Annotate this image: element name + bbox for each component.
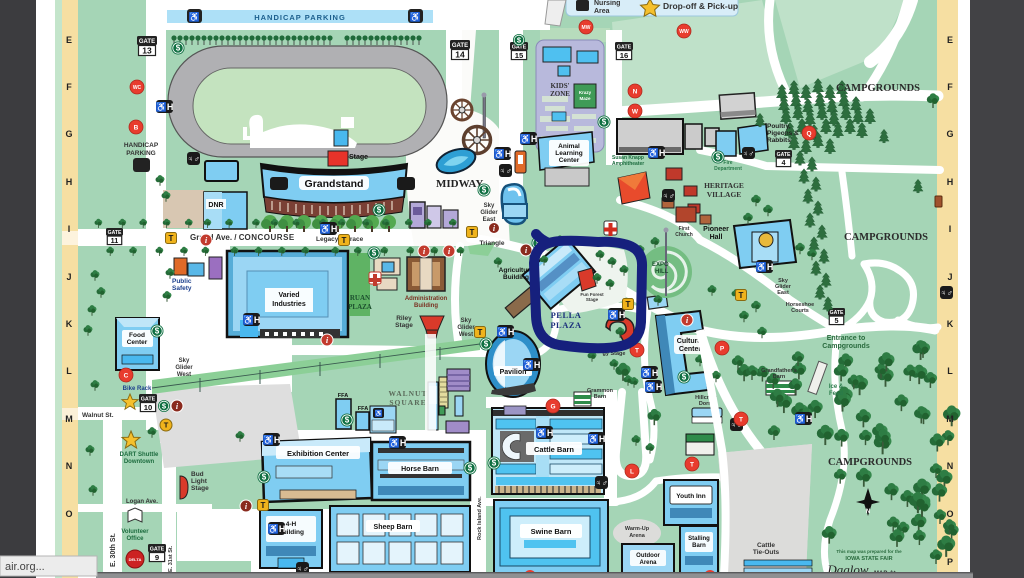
svg-text:♿H: ♿H — [641, 367, 659, 378]
svg-text:Grandstand: Grandstand — [305, 178, 364, 190]
svg-text:WALNUT: WALNUT — [389, 389, 428, 398]
svg-text:Q: Q — [806, 130, 811, 137]
svg-text:DART Shuttle: DART Shuttle — [120, 452, 159, 458]
svg-text:T: T — [164, 421, 169, 430]
svg-text:$: $ — [372, 249, 377, 258]
svg-text:Stage: Stage — [191, 485, 209, 492]
svg-text:KIDS': KIDS' — [550, 82, 569, 90]
svg-text:PLAZA: PLAZA — [348, 303, 372, 311]
svg-text:$: $ — [345, 416, 350, 425]
svg-text:Drop-off & Pick-up: Drop-off & Pick-up — [663, 1, 738, 11]
svg-text:Center: Center — [679, 346, 701, 353]
svg-text:N: N — [947, 461, 954, 471]
svg-text:Pigeons &: Pigeons & — [767, 130, 799, 137]
svg-text:T: T — [690, 461, 694, 468]
svg-text:T: T — [626, 300, 631, 309]
svg-text:Sheep Barn: Sheep Barn — [374, 524, 413, 531]
svg-text:East: East — [777, 290, 789, 296]
svg-text:Campgrounds: Campgrounds — [822, 343, 870, 350]
svg-text:$: $ — [482, 186, 487, 195]
svg-text:RUAN: RUAN — [350, 294, 370, 302]
svg-text:$: $ — [682, 373, 687, 382]
svg-text:GATE: GATE — [139, 39, 155, 45]
svg-text:T: T — [478, 328, 483, 337]
svg-text:WC: WC — [133, 85, 142, 91]
svg-text:E. 30th St.: E. 30th St. — [110, 533, 117, 567]
svg-text:Swine Barn: Swine Barn — [531, 527, 572, 536]
svg-text:T: T — [635, 347, 639, 354]
svg-text:W: W — [632, 108, 639, 115]
svg-text:This map was prepared for the: This map was prepared for the — [836, 549, 902, 554]
svg-text:Entrance to: Entrance to — [827, 335, 866, 342]
svg-text:♿H: ♿H — [523, 359, 541, 370]
svg-text:G: G — [65, 129, 72, 139]
svg-text:Learning: Learning — [555, 150, 582, 157]
svg-text:Courts: Courts — [791, 308, 809, 314]
svg-text:FFA: FFA — [338, 393, 348, 399]
svg-text:Bud: Bud — [191, 471, 204, 478]
svg-text:♿H: ♿H — [494, 148, 512, 159]
svg-text:♿H: ♿H — [497, 326, 515, 337]
svg-text:Pioneer: Pioneer — [703, 226, 729, 233]
svg-text:E. 31st St.: E. 31st St. — [168, 545, 174, 572]
svg-text:HILL: HILL — [655, 269, 669, 275]
svg-text:T: T — [169, 234, 174, 243]
svg-text:Stage: Stage — [349, 154, 368, 161]
svg-text:Logan Ave.: Logan Ave. — [126, 499, 158, 505]
svg-text:Feed: Feed — [829, 391, 843, 397]
svg-text:Triangle: Triangle — [480, 240, 505, 247]
svg-text:GATE: GATE — [150, 546, 165, 552]
svg-text:14: 14 — [455, 50, 465, 60]
svg-text:Building: Building — [414, 303, 438, 309]
svg-text:10: 10 — [144, 403, 153, 412]
svg-text:Tie-Outs: Tie-Outs — [753, 549, 780, 556]
svg-text:$: $ — [468, 464, 473, 473]
svg-text:Varied: Varied — [278, 292, 299, 299]
svg-text:T: T — [342, 236, 347, 245]
svg-text:Center: Center — [559, 157, 580, 164]
svg-text:♿: ♿ — [189, 11, 200, 22]
svg-text:$: $ — [602, 118, 607, 127]
svg-text:♿H: ♿H — [520, 133, 538, 144]
svg-text:♿H: ♿H — [156, 101, 174, 112]
svg-text:Stage: Stage — [586, 297, 599, 302]
svg-text:Sky: Sky — [179, 358, 190, 364]
svg-text:Office: Office — [126, 536, 144, 542]
svg-text:I: I — [68, 224, 71, 234]
svg-text:HERITAGE: HERITAGE — [704, 181, 744, 190]
svg-text:♿H: ♿H — [536, 427, 554, 438]
svg-text:Volunteer: Volunteer — [121, 529, 149, 535]
svg-text:♿H: ♿H — [608, 309, 626, 320]
svg-text:♿H: ♿H — [320, 223, 338, 234]
svg-text:K: K — [66, 319, 73, 329]
svg-text:Stalling: Stalling — [688, 536, 710, 542]
svg-text:♃♂: ♃♂ — [499, 166, 512, 176]
svg-text:Barn: Barn — [692, 543, 706, 549]
svg-text:Exhibition Center: Exhibition Center — [287, 449, 349, 458]
svg-text:H: H — [947, 177, 954, 187]
svg-text:MW: MW — [582, 25, 591, 31]
svg-text:CAMPGROUNDS: CAMPGROUNDS — [828, 457, 912, 468]
svg-text:I: I — [949, 224, 952, 234]
svg-text:4: 4 — [781, 158, 785, 167]
svg-text:Cattle: Cattle — [757, 542, 775, 549]
svg-text:$: $ — [155, 327, 160, 336]
svg-text:Animal: Animal — [558, 143, 580, 150]
svg-text:$: $ — [262, 473, 267, 482]
svg-text:Riley: Riley — [396, 315, 412, 322]
svg-text:FFA: FFA — [358, 406, 368, 412]
svg-text:♿H: ♿H — [645, 381, 663, 392]
svg-text:♃♂: ♃♂ — [187, 154, 200, 164]
svg-text:Walnut St.: Walnut St. — [82, 412, 114, 419]
svg-text:Building: Building — [503, 274, 529, 281]
svg-text:G: G — [946, 129, 953, 139]
svg-text:M: M — [65, 414, 73, 424]
svg-text:♿H: ♿H — [588, 433, 606, 444]
svg-text:EXPO: EXPO — [652, 262, 669, 268]
svg-text:G: G — [550, 403, 555, 410]
svg-text:Barn: Barn — [773, 374, 786, 380]
svg-text:F: F — [66, 82, 72, 92]
svg-text:$: $ — [492, 459, 497, 468]
svg-text:GATE: GATE — [617, 44, 632, 50]
svg-text:P: P — [720, 345, 725, 352]
svg-text:5: 5 — [834, 316, 838, 325]
svg-text:♃♂: ♃♂ — [595, 478, 608, 488]
svg-text:CAMPGROUNDS: CAMPGROUNDS — [844, 232, 928, 243]
svg-text:♿: ♿ — [374, 410, 382, 418]
svg-text:B: B — [134, 124, 139, 131]
svg-text:♿H: ♿H — [268, 523, 286, 534]
svg-text:Pavilion: Pavilion — [500, 369, 527, 376]
svg-text:Sky: Sky — [461, 318, 472, 324]
svg-text:Safety: Safety — [172, 285, 192, 292]
svg-text:$: $ — [716, 153, 721, 162]
svg-text:Warm-Up: Warm-Up — [625, 526, 650, 532]
svg-text:Ice &: Ice & — [829, 384, 844, 390]
svg-text:HANDICAP: HANDICAP — [124, 142, 159, 149]
svg-text:Bike Rack: Bike Rack — [123, 386, 152, 392]
svg-text:J: J — [947, 272, 952, 282]
svg-text:Food: Food — [129, 332, 145, 339]
svg-text:16: 16 — [620, 51, 629, 60]
svg-text:Nursing: Nursing — [594, 0, 620, 7]
svg-text:Arena: Arena — [639, 560, 657, 566]
svg-text:Glider: Glider — [457, 325, 475, 331]
svg-text:Church: Church — [675, 232, 693, 238]
svg-text:Industries: Industries — [272, 301, 306, 308]
svg-text:Light: Light — [191, 478, 208, 485]
svg-text:Agriculture: Agriculture — [499, 267, 534, 274]
svg-text:Stage: Stage — [395, 322, 413, 329]
svg-text:HANDICAP PARKING: HANDICAP PARKING — [254, 13, 346, 22]
svg-text:L: L — [947, 366, 953, 376]
svg-text:T: T — [470, 228, 475, 237]
svg-text:N: N — [866, 509, 870, 515]
svg-text:♃♂: ♃♂ — [940, 288, 953, 298]
svg-text:Rock Island Ave.: Rock Island Ave. — [477, 496, 483, 540]
svg-text:♿H: ♿H — [389, 437, 407, 448]
svg-text:♿H: ♿H — [648, 147, 666, 158]
svg-text:Public: Public — [172, 278, 192, 285]
svg-text:Hall: Hall — [710, 234, 723, 241]
svg-text:O: O — [65, 509, 72, 519]
svg-text:Cattle Barn: Cattle Barn — [534, 445, 574, 454]
svg-text:West: West — [177, 372, 191, 378]
svg-text:4-H: 4-H — [286, 521, 297, 528]
svg-text:C: C — [124, 372, 129, 379]
svg-text:♃♂: ♃♂ — [743, 149, 755, 158]
svg-text:L: L — [630, 468, 634, 475]
svg-text:PARKING: PARKING — [126, 150, 156, 157]
svg-text:Poultry,: Poultry, — [767, 123, 791, 130]
svg-text:Maze: Maze — [579, 96, 591, 101]
svg-text:DNR: DNR — [208, 202, 223, 209]
svg-text:M: M — [946, 414, 954, 424]
svg-text:Department: Department — [714, 166, 742, 172]
svg-text:K: K — [947, 319, 954, 329]
svg-text:♿: ♿ — [410, 11, 421, 22]
svg-text:GATE: GATE — [141, 396, 156, 402]
svg-text:$: $ — [377, 206, 382, 215]
svg-text:Center: Center — [127, 339, 148, 346]
svg-text:Rabbits: Rabbits — [767, 137, 791, 144]
svg-text:Amphitheater: Amphitheater — [612, 161, 644, 167]
svg-text:O: O — [946, 509, 953, 519]
svg-text:air.org...: air.org... — [5, 561, 45, 573]
svg-text:WW: WW — [679, 29, 689, 35]
svg-text:E: E — [947, 35, 953, 45]
svg-text:Youth Inn: Youth Inn — [676, 493, 706, 500]
svg-text:N: N — [633, 88, 638, 95]
svg-text:J: J — [66, 272, 71, 282]
svg-text:♿H: ♿H — [756, 261, 774, 272]
svg-text:T: T — [739, 416, 743, 423]
svg-text:13: 13 — [142, 46, 152, 56]
svg-text:P: P — [947, 557, 953, 567]
svg-text:Area: Area — [594, 8, 610, 15]
svg-text:Downtown: Downtown — [124, 459, 155, 465]
svg-text:CAMPGROUNDS: CAMPGROUNDS — [836, 83, 920, 94]
svg-text:11: 11 — [111, 236, 119, 245]
svg-text:Sky: Sky — [484, 203, 495, 209]
svg-text:West: West — [459, 332, 473, 338]
svg-text:♿H: ♿H — [263, 434, 281, 445]
svg-text:$: $ — [484, 340, 489, 349]
svg-text:Glider: Glider — [175, 365, 193, 371]
svg-text:Arena: Arena — [629, 533, 646, 539]
svg-text:Krazy: Krazy — [579, 90, 592, 95]
svg-text:N: N — [66, 461, 73, 471]
svg-text:T: T — [261, 501, 266, 510]
svg-text:Outdoor: Outdoor — [636, 553, 660, 559]
svg-text:PELLA: PELLA — [551, 310, 582, 320]
svg-text:F: F — [947, 82, 953, 92]
svg-text:♃♂: ♃♂ — [662, 191, 675, 201]
svg-text:L: L — [66, 366, 72, 376]
svg-text:MIDWAY: MIDWAY — [436, 178, 483, 190]
svg-text:Administration: Administration — [405, 296, 448, 302]
svg-text:♿H: ♿H — [243, 314, 261, 325]
svg-text:T: T — [739, 291, 744, 300]
svg-text:15: 15 — [515, 51, 524, 60]
svg-text:Horse Barn: Horse Barn — [401, 466, 439, 473]
svg-text:VILLAGE: VILLAGE — [707, 190, 742, 199]
svg-text:H: H — [66, 177, 73, 187]
svg-text:E: E — [66, 35, 72, 45]
svg-text:DELTA: DELTA — [129, 557, 142, 562]
svg-text:PLAZA: PLAZA — [550, 320, 582, 330]
svg-text:Barn: Barn — [594, 394, 607, 400]
svg-text:$: $ — [176, 44, 181, 53]
svg-text:9: 9 — [155, 553, 159, 562]
svg-text:♿H: ♿H — [795, 413, 813, 424]
svg-text:Glider: Glider — [480, 210, 498, 216]
svg-text:GATE: GATE — [452, 43, 468, 49]
